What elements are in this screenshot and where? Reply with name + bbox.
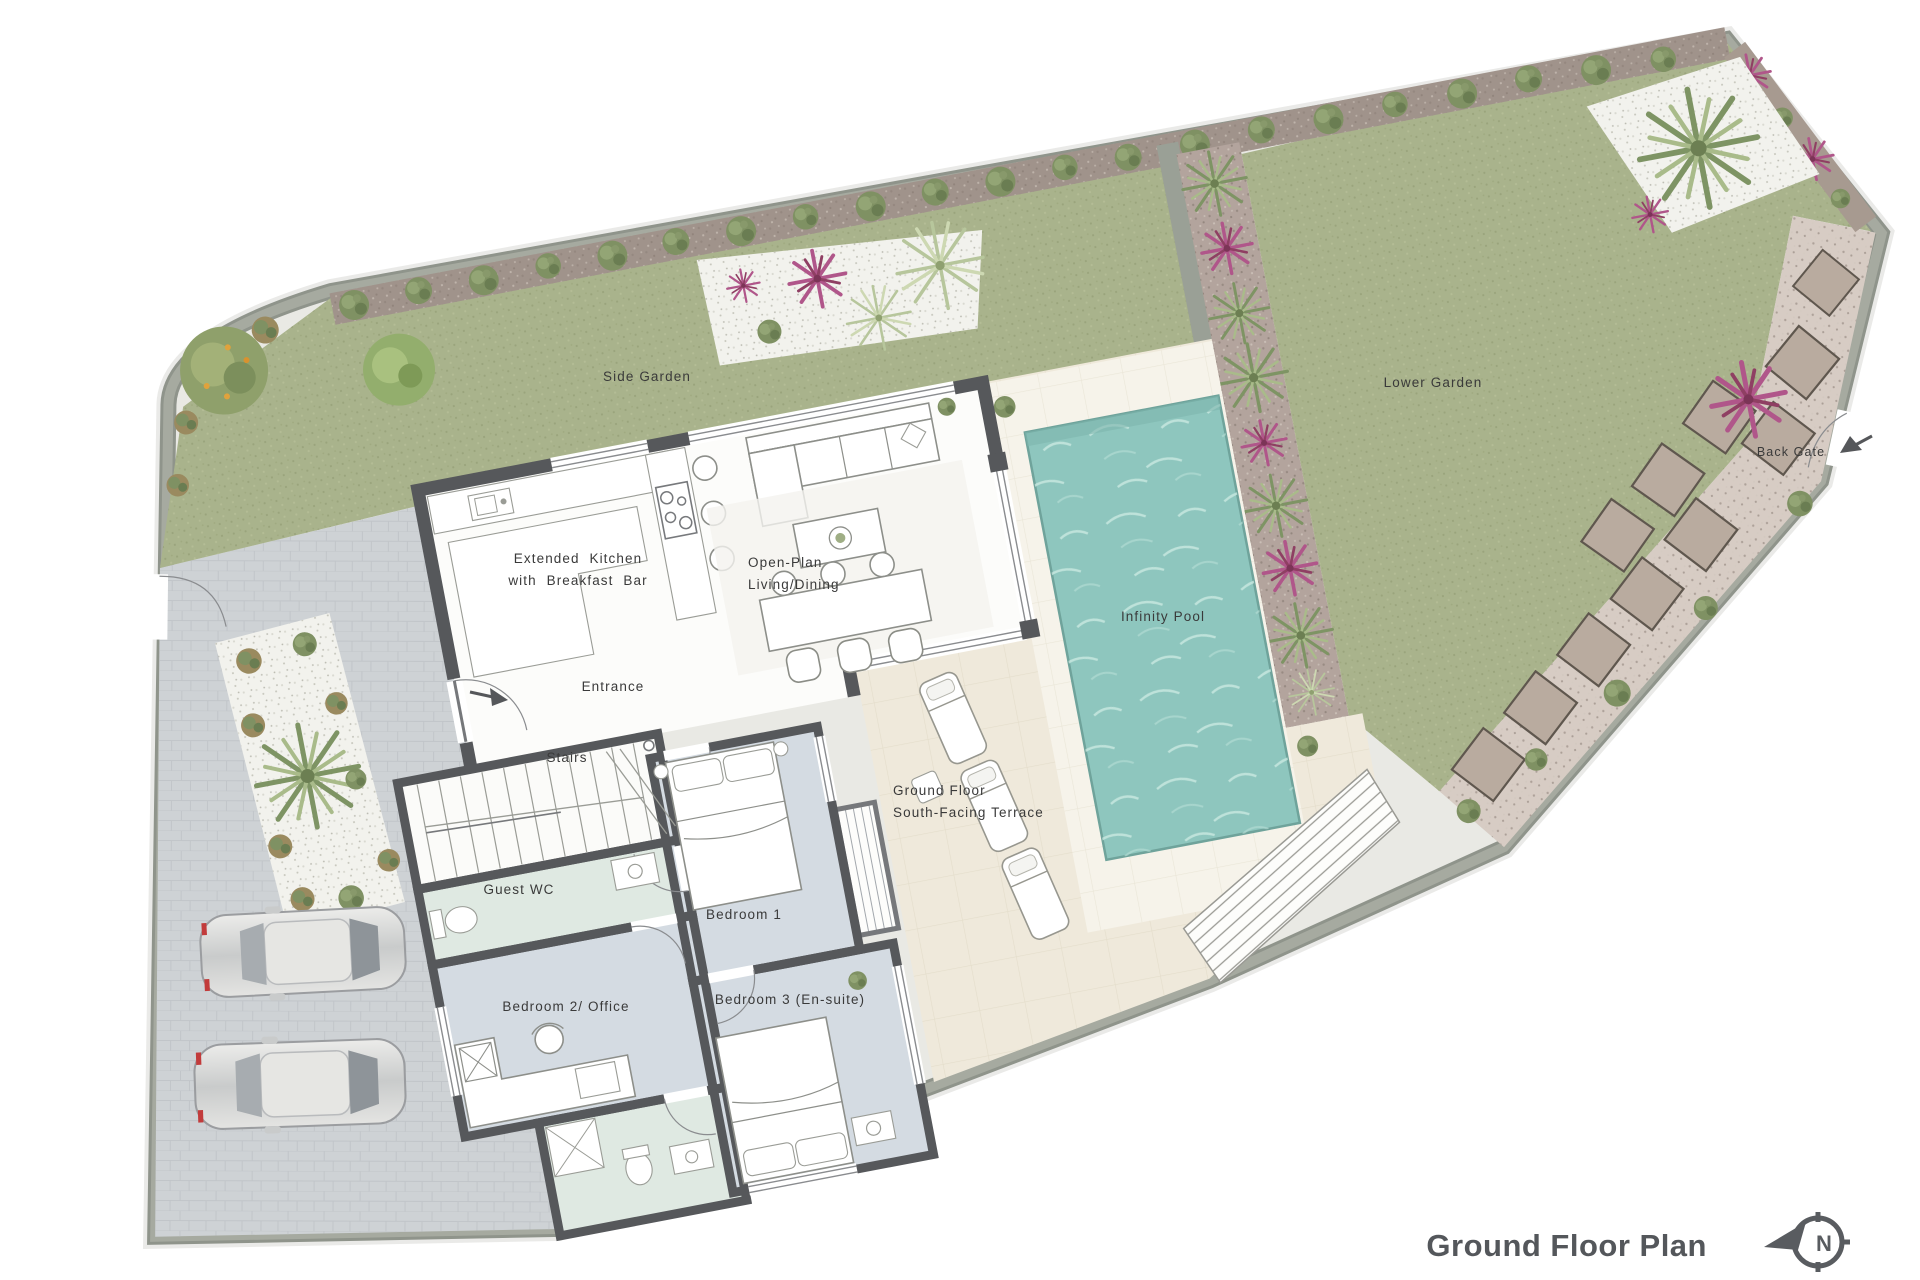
label-side-garden: Side Garden	[603, 369, 691, 384]
label-living-1: Open-Plan	[748, 555, 822, 570]
ground-floor-plan-page: Side Garden Lower Garden Back Gate Exten…	[0, 0, 1920, 1280]
car-1	[199, 900, 408, 1005]
label-guest-wc: Guest WC	[483, 882, 554, 897]
compass-n-letter: N	[1816, 1231, 1832, 1256]
north-compass-icon: N	[1764, 1212, 1850, 1272]
label-stairs: Stairs	[546, 750, 587, 765]
label-kitchen-1: Extended Kitchen	[514, 551, 642, 566]
label-entrance: Entrance	[582, 679, 645, 694]
label-back-gate: Back Gate	[1757, 445, 1825, 459]
label-infinity-pool: Infinity Pool	[1121, 609, 1205, 624]
page-title: Ground Floor Plan	[1426, 1228, 1707, 1263]
label-living-2: Living/Dining	[748, 577, 840, 592]
label-bedroom2: Bedroom 2/ Office	[502, 999, 629, 1014]
label-kitchen-2: with Breakfast Bar	[507, 573, 647, 588]
label-terrace-1: Ground Floor	[893, 783, 986, 798]
floor-plan-canvas: Side Garden Lower Garden Back Gate Exten…	[0, 0, 1920, 1280]
label-lower-garden: Lower Garden	[1384, 375, 1483, 390]
label-bedroom1: Bedroom 1	[706, 907, 782, 922]
label-bedroom3: Bedroom 3 (En-suite)	[715, 992, 865, 1007]
label-terrace-2: South-Facing Terrace	[893, 805, 1044, 820]
car-2	[193, 1032, 406, 1136]
